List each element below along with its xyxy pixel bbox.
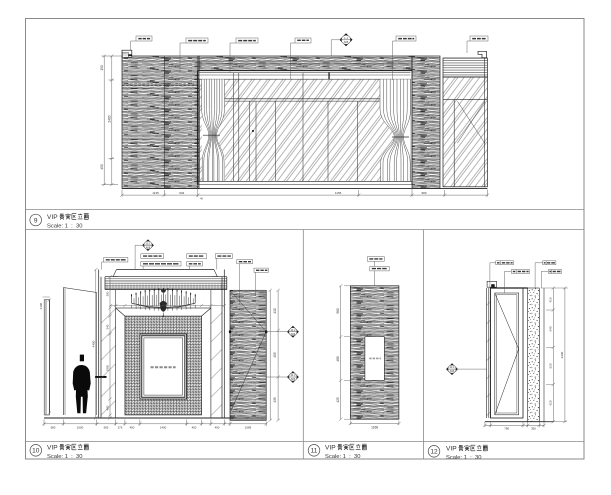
svg-text:455: 455 [273,352,277,358]
svg-text:1135: 1135 [152,191,159,195]
svg-text:Scale: 1 : 30: Scale: 1 : 30 [47,454,82,460]
svg-text:1400: 1400 [160,426,167,430]
svg-text:A06: A06 [291,332,296,336]
svg-text:10.2: 10.2 [290,328,296,332]
svg-text:12: 12 [430,449,438,456]
svg-text:A06: A06 [291,377,296,381]
svg-text:VIP: VIP [47,445,58,452]
svg-text:480: 480 [106,405,110,410]
svg-text:904: 904 [179,191,184,195]
svg-text:150: 150 [100,65,104,71]
svg-text:565: 565 [104,426,109,430]
svg-text:L.1: L.1 [344,36,348,40]
svg-text:1000: 1000 [77,426,84,430]
svg-text:10.1: 10.1 [145,241,151,245]
svg-text:435: 435 [273,397,277,403]
svg-text:480: 480 [336,356,340,362]
svg-text:410: 410 [273,308,277,314]
svg-text:580: 580 [51,426,56,430]
svg-text:540: 540 [106,324,110,329]
svg-text:12.1: 12.1 [449,365,455,369]
svg-text:A06: A06 [450,369,455,373]
svg-text:1156: 1156 [335,191,342,195]
svg-text:A06: A06 [146,245,151,249]
svg-text:980: 980 [421,191,426,195]
svg-text:350: 350 [531,426,536,430]
svg-text:410: 410 [549,297,553,302]
svg-text:2100: 2100 [39,302,43,309]
svg-text:2400: 2400 [108,115,112,122]
svg-text:Scale: 1 : 30: Scale: 1 : 30 [446,455,481,461]
svg-text:450: 450 [100,164,104,170]
svg-text:9: 9 [34,217,38,224]
svg-text:275: 275 [118,426,123,430]
svg-text:Scale: 1 : 30: Scale: 1 : 30 [325,454,360,460]
svg-text:450: 450 [130,426,135,430]
svg-text:390: 390 [106,291,110,296]
svg-text:620: 620 [549,400,553,405]
svg-text:2290: 2290 [560,351,564,358]
svg-text:425: 425 [336,397,340,403]
svg-text:Scale: 1 : 30: Scale: 1 : 30 [47,224,82,230]
svg-text:1168: 1168 [371,426,378,430]
svg-text:400: 400 [215,426,220,430]
svg-text:4450: 4450 [91,340,95,347]
svg-text:620: 620 [549,363,553,368]
svg-text:VIP: VIP [47,214,58,221]
svg-text:1085: 1085 [245,426,252,430]
svg-text:780: 780 [504,426,509,430]
svg-text:A06: A06 [344,40,349,44]
svg-text:1950: 1950 [106,364,110,371]
svg-text:VIP: VIP [325,445,336,452]
svg-text:10.3: 10.3 [290,373,296,377]
svg-text:VIP: VIP [446,446,457,453]
svg-text:560: 560 [336,308,340,314]
svg-text:450: 450 [192,426,197,430]
svg-text:640: 640 [549,326,553,331]
svg-text:11: 11 [311,448,318,455]
svg-text:10: 10 [32,448,40,455]
